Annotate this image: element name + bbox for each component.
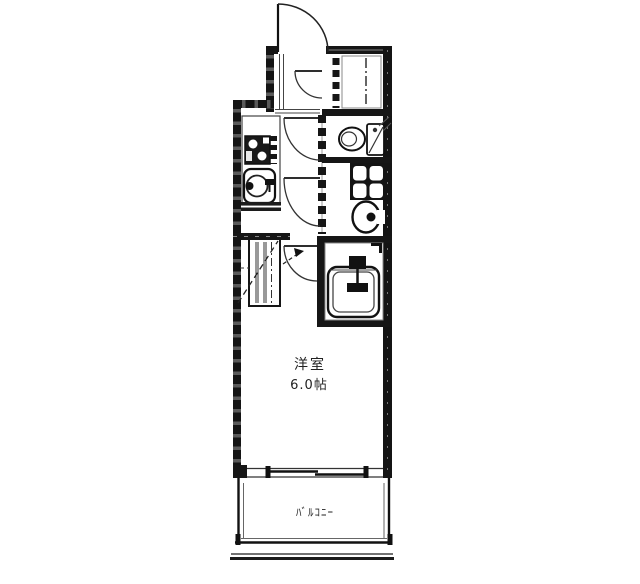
stove-detail-2 — [263, 138, 269, 144]
window-stile-right — [364, 466, 369, 478]
genkan-door-arc — [295, 71, 322, 98]
pan-quadrant-1 — [353, 166, 367, 181]
bath-door-notch-2 — [379, 243, 382, 253]
balcony-cap-right — [388, 534, 393, 545]
kitchen — [241, 116, 281, 211]
room-label: 洋室 — [294, 356, 326, 373]
washroom-door-arc — [284, 178, 320, 226]
toilet-bowl — [339, 128, 365, 151]
pan-quadrant-4 — [370, 184, 384, 199]
entry-door-arc — [278, 4, 328, 52]
counter-bottom-bar-2 — [241, 208, 281, 212]
sink-drain — [246, 182, 254, 190]
stove-detail-1 — [246, 151, 252, 161]
toilet-door-arc — [284, 118, 320, 160]
storage-inner-outline — [342, 56, 381, 108]
bath-faucet — [349, 256, 366, 269]
balcony-cap-left — [236, 534, 241, 545]
toilet-room — [339, 117, 391, 155]
wall-bath-left — [317, 236, 325, 327]
wall-toilet-washroom — [322, 157, 392, 163]
wall-bath-top — [317, 236, 392, 243]
counter-bottom-bar-1 — [241, 202, 281, 206]
room-size-label: 6.0帖 — [290, 378, 328, 393]
sink-faucet — [265, 179, 274, 185]
pan-quadrant-2 — [370, 166, 384, 181]
closet — [238, 239, 280, 306]
wall-toilet-top — [322, 109, 392, 116]
ground-line — [230, 554, 394, 559]
balcony-label: ﾊﾞﾙｺﾆｰ — [296, 506, 334, 519]
pan-quadrant-3 — [353, 184, 367, 199]
floor-plan-drawing: 洋室 6.0帖 ﾊﾞﾙｺﾆｰ — [0, 0, 640, 584]
wall-bath-bottom — [317, 320, 392, 327]
floor-plan: 洋室 6.0帖 ﾊﾞﾙｺﾆｰ — [0, 0, 640, 584]
stove-burner-1 — [249, 140, 258, 149]
sliding-window — [247, 466, 383, 478]
bathroom — [325, 243, 383, 320]
window-stile-left — [266, 466, 271, 478]
bath-faucet-base — [347, 283, 368, 292]
washbasin-opening — [377, 210, 385, 224]
toilet-tank-button — [373, 128, 377, 132]
wall-window-left-block — [233, 465, 247, 478]
stove-burner-2 — [258, 152, 267, 161]
washroom — [350, 163, 386, 233]
washbasin-drain — [367, 213, 376, 222]
